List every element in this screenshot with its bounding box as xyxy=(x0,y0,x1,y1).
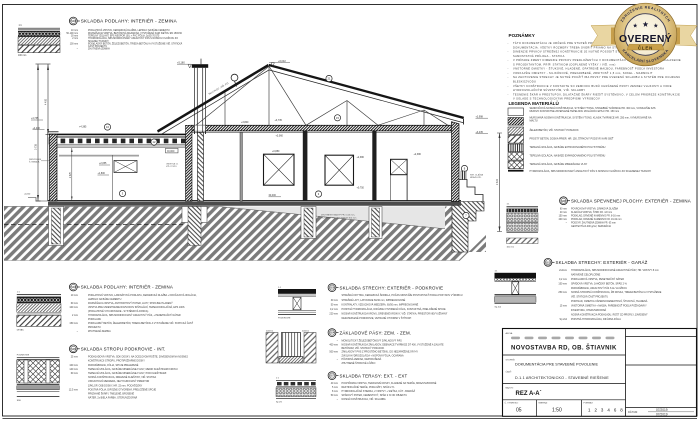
svg-text:NOSNÁ KONŠTRUKCIA ZÁKLADOV, DE: NOSNÁ KONŠTRUKCIA ZÁKLADOV, DEBNIACE TVÁ… xyxy=(342,343,444,346)
svg-text:(PODLAHOVÉ VYKUROVANIE - SYSTÉ: (PODLAHOVÉ VYKUROVANIE - SYSTÉMOVÁ DOSKA… xyxy=(88,310,148,313)
svg-text:PODKLAD, DRVENÉ KAMENIVO FR. 8: PODKLAD, DRVENÉ KAMENIVO FR. 8-16 mm xyxy=(571,215,620,218)
svg-text:POVRCHOVÁ VRSTVA, ZÁMKOVÁ DLAŽ: POVRCHOVÁ VRSTVA, ZÁMKOVÁ DLAŽBA xyxy=(571,208,618,211)
svg-text:KLADÚCA VRSTVA, ŠTRK FR. 4-8 m: KLADÚCA VRSTVA, ŠTRK FR. 4-8 mm xyxy=(571,211,612,214)
svg-text:50 mm: 50 mm xyxy=(331,394,338,397)
svg-text:NOSNÁ STROPNÁ KONŠTRUKCIA, ŽB: NOSNÁ STROPNÁ KONŠTRUKCIA, ŽB DOSKA, TRI… xyxy=(571,291,662,294)
svg-text:100 mm: 100 mm xyxy=(70,43,78,45)
svg-text:DÁTUM:: DÁTUM: xyxy=(628,410,638,414)
svg-text:PROJEKTU: PROJEKTU xyxy=(88,326,101,329)
svg-text:40 mm: 40 mm xyxy=(560,212,567,214)
svg-text:-: - xyxy=(508,85,509,88)
svg-text:+6,002: +6,002 xyxy=(278,60,286,63)
svg-text:150 mm: 150 mm xyxy=(558,282,567,285)
svg-text:STREŠNÁ KRYTINA, KERAMICKÁ ŠKR: STREŠNÁ KRYTINA, KERAMICKÁ ŠKRIDLA, POČA… xyxy=(342,294,463,297)
svg-text:SKLADBA STRECHY: EXTERIÉR - GA: SKLADBA STRECHY: EXTERIÉR - GARÁŽ xyxy=(556,260,648,265)
svg-text:TEPELNÁ IZOLÁCIA, NA BÁZE MINE: TEPELNÁ IZOLÁCIA, NA BÁZE MINERÁLNEJ VLN… xyxy=(88,368,178,371)
svg-text:-: - xyxy=(508,42,509,45)
svg-text:PODKLADU: PODKLADU xyxy=(88,318,101,321)
svg-text:+0,750: +0,750 xyxy=(357,187,365,190)
svg-text:S06: S06 xyxy=(71,347,76,351)
svg-text:PRIZNANÉ ŠKÁRY, TMELENÉ, BRÚSE: PRIZNANÉ ŠKÁRY, TMELENÉ, BRÚSENÉ xyxy=(88,393,134,396)
svg-text:HYDROIZOLAČNÁ STIERKA, 2 VRSTV: HYDROIZOLAČNÁ STIERKA, 2 VRSTVY + SIEŤKA… xyxy=(342,390,416,393)
svg-text:D.1.1 ARCHITEKTONICKO - STAVE: D.1.1 ARCHITEKTONICKO - STAVEBNÉ RIEŠENI… xyxy=(515,375,609,380)
svg-text:SDK: SDK xyxy=(17,400,22,402)
svg-text:-: - xyxy=(508,76,509,79)
svg-text:NÁTER, 2x BIELA FARBA, OTERUVZ: NÁTER, 2x BIELA FARBA, OTERUVZDORNÁ xyxy=(88,397,138,400)
svg-text:5 mm: 5 mm xyxy=(332,386,338,389)
svg-text:TEPELNÁ IZOLÁCIA, NA BÁZE MINE: TEPELNÁ IZOLÁCIA, NA BÁZE MINERÁLNEJ VLN… xyxy=(530,163,588,166)
svg-text:ZATEPLENIE: ZATEPLENIE xyxy=(29,158,42,161)
svg-text:POISTNÁ HYDROIZOLÁCIA, DIFÚZNE: POISTNÁ HYDROIZOLÁCIA, DIFÚZNE OTVORENÁ … xyxy=(342,308,447,311)
svg-text:PODKLADNÝ BETÓN, ŽELEZOBETÓN,: PODKLADNÝ BETÓN, ŽELEZOBETÓN, TRIEDA BET… xyxy=(88,42,183,45)
svg-text:MALTU: MALTU xyxy=(530,120,538,123)
svg-text:+0,880: +0,880 xyxy=(272,150,280,153)
svg-text:60 mm: 60 mm xyxy=(71,372,78,375)
svg-text:VZDUCHOVÁ MEDZERA, NEVYKUROVAN: VZDUCHOVÁ MEDZERA, NEVYKUROVANÝ PRIESTOR xyxy=(88,380,150,383)
svg-text:2 mm: 2 mm xyxy=(72,38,78,40)
svg-text:Sp 4x2: Sp 4x2 xyxy=(495,307,502,309)
svg-text:10 mm: 10 mm xyxy=(71,294,78,297)
svg-text:HYDROIZOLÁCIA, SBS MODIFIKOVAN: HYDROIZOLÁCIA, SBS MODIFIKOVANÝ ASFALTOV… xyxy=(530,170,652,173)
svg-text:100 mm: 100 mm xyxy=(18,55,26,57)
svg-text:S08: S08 xyxy=(561,199,566,203)
svg-text:PODKROVIE: PODKROVIE xyxy=(278,318,291,320)
svg-text:10 mm: 10 mm xyxy=(71,30,78,32)
svg-text:PODSYP, ZHUTNENÁ ZEMINA FR. 63: PODSYP, ZHUTNENÁ ZEMINA FR. 63 mm xyxy=(571,222,616,225)
svg-text:NATAVENÉ CELOPLOŠNE: NATAVENÉ CELOPLOŠNE xyxy=(571,273,601,276)
svg-text:Sp 2x2: Sp 2x2 xyxy=(560,318,568,321)
svg-text:TEPELNÁ IZOLÁCIA, NA BÁZE EXPA: TEPELNÁ IZOLÁCIA, NA BÁZE EXPANDOVANÉHO … xyxy=(530,155,606,158)
svg-text:PAROZÁBRANA, ASFALTOVÝ PÁS S A: PAROZÁBRANA, ASFALTOVÝ PÁS S AL VLOŽKOU xyxy=(571,287,627,290)
svg-text:MURIVO KONTAKTNE ZATEPLENÉ TEP: MURIVO KONTAKTNE ZATEPLENÉ TEPELNOU IZOL… xyxy=(530,110,620,113)
svg-text:ČASŤ PROJEKTU: ČASŤ PROJEKTU xyxy=(88,45,107,48)
svg-text:STUPEŇ:: STUPEŇ: xyxy=(506,358,516,361)
svg-text:2 625: 2 625 xyxy=(70,172,72,178)
svg-text:3 735: 3 735 xyxy=(35,143,38,150)
svg-text:PODLAHOVÁ VRSTVA, LAMINÁTOVÁ P: PODLAHOVÁ VRSTVA, LAMINÁTOVÁ PODLAHA, KE… xyxy=(88,294,197,297)
svg-text:500 mm: 500 mm xyxy=(329,351,338,354)
svg-text:ZÁKLADOVÝ PÁS Z PROSTÉHO BETÓN: ZÁKLADOVÝ PÁS Z PROSTÉHO BETÓNU, DO NEZA… xyxy=(342,351,419,354)
svg-text:DOKUMENTÁCIA PRE STAVEBNÉ POVO: DOKUMENTÁCIA PRE STAVEBNÉ POVOLENIE xyxy=(515,361,598,366)
svg-text:4 400: 4 400 xyxy=(45,98,48,105)
svg-text:ZHUTNENÝ NÁSYP FR. 0-63 mm,: ZHUTNENÝ NÁSYP FR. 0-63 mm, xyxy=(321,214,355,217)
svg-text:NOSNÁ KONŠTRUKCIA, DREVENÉ KLI: NOSNÁ KONŠTRUKCIA, DREVENÉ KLIEŠTINY, VI… xyxy=(88,376,157,379)
svg-text:07/2019: 07/2019 xyxy=(656,413,668,417)
svg-text:GEOTEXTÍLIA 300 g/m2, SEPARÁCI: GEOTEXTÍLIA 300 g/m2, SEPARÁCIA xyxy=(571,225,611,228)
svg-text:+4,735: +4,735 xyxy=(31,117,39,120)
svg-text:+2,380: +2,380 xyxy=(414,153,422,156)
svg-text:HYDROIZOLÁCIA, SBS MODIFIKOVAN: HYDROIZOLÁCIA, SBS MODIFIKOVANÝ ASFALTOV… xyxy=(88,314,181,317)
svg-text:±0,000: ±0,000 xyxy=(167,150,175,153)
svg-text:Sp 2%: Sp 2% xyxy=(276,401,282,403)
svg-text:MIERKA:: MIERKA: xyxy=(539,402,548,405)
svg-text:PODKROVIE: PODKROVIE xyxy=(17,354,30,356)
svg-text:REKTIFIKAČNÉ TERČE, PODLOŽKY,: REKTIFIKAČNÉ TERČE, PODLOŽKY, SPÁD 2 % xyxy=(342,386,396,389)
svg-text:HYDROIZOLÁCIA, SBS MODIFIKOVAN: HYDROIZOLÁCIA, SBS MODIFIKOVANÉ ASFALTOV… xyxy=(571,269,659,272)
svg-text:ČASŤ:: ČASŤ: xyxy=(506,370,513,373)
svg-text:150 mm: 150 mm xyxy=(559,216,567,218)
svg-text:BLESKOZVODU: BLESKOZVODU xyxy=(513,80,536,84)
svg-text:PROSTÝ BETÓN, DOSKA PRIER. HR.: PROSTÝ BETÓN, DOSKA PRIER. HR. 150, ŠTRK… xyxy=(530,138,614,141)
svg-text:DETAIL: DETAIL xyxy=(17,329,25,332)
svg-text:SKLADBA PODLAHY: INTERIÉR - ZE: SKLADBA PODLAHY: INTERIÉR - ZEMINA xyxy=(81,18,178,24)
svg-text:KONŠTRUKCII STROPU, PROTIPOŽIA: KONŠTRUKCII STROPU, PROTIPOŽIARNE DOSKY xyxy=(88,360,145,363)
svg-text:25 mm: 25 mm xyxy=(71,356,78,359)
svg-text:-: - xyxy=(508,93,509,96)
svg-text:NOVOSTAVBA RD, OB. ŠTIAVNIK: NOVOSTAVBA RD, OB. ŠTIAVNIK xyxy=(511,344,617,352)
svg-text:SPÁDOVÝ POTER, CEMENTOVÝ, SPÁD: SPÁDOVÝ POTER, CEMENTOVÝ, SPÁD 2 % OD OB… xyxy=(342,394,408,397)
svg-text:220 mm: 220 mm xyxy=(329,312,338,315)
svg-text:2 615: 2 615 xyxy=(496,178,499,185)
svg-text:100 mm: 100 mm xyxy=(69,364,78,367)
svg-text:S03: S03 xyxy=(71,19,76,23)
svg-text:-: - xyxy=(508,51,509,54)
svg-text:0,2 mm: 0,2 mm xyxy=(559,278,567,281)
svg-text:ZHUTNENÉ ŠTRKOVÉ LÔŽKO: ZHUTNENÉ ŠTRKOVÉ LÔŽKO xyxy=(342,362,376,365)
svg-text:AKCIA:: AKCIA: xyxy=(506,332,514,335)
svg-text:OVERENÝ: OVERENÝ xyxy=(619,32,672,45)
svg-text:ŽELEZOBETÓN, VIĎ. STATICKÝ POS: ŽELEZOBETÓN, VIĎ. STATICKÝ POSUDOK xyxy=(530,129,579,132)
svg-text:SKLADBA SPEVNENEJ PLOCHY: EXTE: SKLADBA SPEVNENEJ PLOCHY: EXTERIÉR - ZEM… xyxy=(571,198,691,203)
svg-text:S04: S04 xyxy=(330,331,335,335)
svg-text:POCHÔDZNA VRSTVA, TERASOVÉ DOS: POCHÔDZNA VRSTVA, TERASOVÉ DOSKY, KLADEN… xyxy=(342,382,437,385)
svg-text:ČLEN: ČLEN xyxy=(638,45,653,50)
svg-text:POZNÁMKY: POZNÁMKY xyxy=(509,32,535,38)
svg-text:SKLENEJ TKANINY: SKLENEJ TKANINY xyxy=(88,40,109,43)
svg-text:1:50: 1:50 xyxy=(552,408,562,414)
svg-text:+3,998: +3,998 xyxy=(476,115,484,118)
svg-text:PAROZÁBRANA, FÓLIA, SPOJE PREL: PAROZÁBRANA, FÓLIA, SPOJE PRELEPENÉ xyxy=(88,364,139,367)
svg-text:30 mm: 30 mm xyxy=(331,299,338,302)
svg-text:LEGENDA MATERIÁLŮ: LEGENDA MATERIÁLŮ xyxy=(509,99,560,106)
svg-text:07/2019: 07/2019 xyxy=(656,408,668,412)
svg-text:PODLAHOVÁ VRSTVA, KERAMICKÁ DL: PODLAHOVÁ VRSTVA, KERAMICKÁ DLAŽBA, LEPI… xyxy=(88,29,170,32)
svg-text:+3,735: +3,735 xyxy=(275,119,283,122)
svg-text:ROZNÁŠACIA VRSTVA, ANHYDRITOVÝ: ROZNÁŠACIA VRSTVA, ANHYDRITOVÝ POTER, LI… xyxy=(88,302,173,305)
svg-text:MONOLITICKÝ ŽELEZOBETÓNOVÝ ZÁK: MONOLITICKÝ ŽELEZOBETÓNOVÝ ZÁKLADOVÝ PÁS xyxy=(342,340,403,343)
svg-text:+4,400: +4,400 xyxy=(33,127,41,130)
svg-text:INVESTORA, OTERUVZDORNÁ: INVESTORA, OTERUVZDORNÁ xyxy=(571,309,607,312)
svg-text:SKLADBA STRECHY: EXTERIÉR - PO: SKLADBA STRECHY: EXTERIÉR - PODKROVIE xyxy=(340,285,444,290)
svg-text:POISTNÁ FÓLIA, DIFÚZNE OTVOREN: POISTNÁ FÓLIA, DIFÚZNE OTVORENÁ, PRELOŽE… xyxy=(88,388,157,391)
svg-text:PODKLADNÝ BETÓN, ŽELEZOBETÓN,: PODKLADNÝ BETÓN, ŽELEZOBETÓN, TRIEDA BET… xyxy=(88,322,194,325)
svg-text:VNÚTORNÁ OMIETKA + MAĽBA, FARE: VNÚTORNÁ OMIETKA + MAĽBA, FAREBNOSŤ PODĽ… xyxy=(571,305,647,308)
svg-text:2x4mm: 2x4mm xyxy=(559,269,567,272)
svg-text:VIĎ. POPIS: VIĎ. POPIS xyxy=(166,165,177,168)
svg-text:+4,385: +4,385 xyxy=(79,125,87,128)
svg-text:NEZATEPLENÉ PODKROVIE, VETRANÉ: NEZATEPLENÉ PODKROVIE, VETRANÉ OTVORMI V… xyxy=(342,317,412,320)
svg-text:+5,180: +5,180 xyxy=(177,61,185,64)
svg-text:ROZNÁŠACIA VRSTVA, BETÓNOVÁ MA: ROZNÁŠACIA VRSTVA, BETÓNOVÁ MAZANINA, VY… xyxy=(88,32,183,35)
svg-text:TEPELNÝ IZOLANT, EPS NEOPOR 10: TEPELNÝ IZOLANT, EPS NEOPOR 100, + PVC F… xyxy=(88,35,160,38)
svg-text:S05: S05 xyxy=(546,260,551,264)
svg-text:POISTNÁ HYDROIZOLÁCIA, DIFÚZNA: POISTNÁ HYDROIZOLÁCIA, DIFÚZNA FÓLIA xyxy=(571,318,621,321)
svg-text:PODHĽADOVÁ VRSTVA, SDK DOSKY,: PODHĽADOVÁ VRSTVA, SDK DOSKY, NA OCEĽOVO… xyxy=(88,356,189,359)
svg-text:ZHUTNENÁ ZEMINA: ZHUTNENÁ ZEMINA xyxy=(88,330,111,333)
svg-text:40 mm: 40 mm xyxy=(331,382,338,385)
svg-text:+3,800: +3,800 xyxy=(241,121,249,124)
svg-text:TEPELNÁ IZOLÁCIA, NA BÁZE MINE: TEPELNÁ IZOLÁCIA, NA BÁZE MINERÁLNEJ VLN… xyxy=(88,372,167,375)
svg-text:PODHĽAD, OMIETKA VÁPENNOCEMENT: PODHĽAD, OMIETKA VÁPENNOCEMENTOVÁ, ŠTUKO… xyxy=(571,300,648,303)
svg-text:ZÁKLOP, OSB DOSKY, HR. 22 mm,: ZÁKLOP, OSB DOSKY, HR. 22 mm, POCHÔDZNY xyxy=(88,384,143,387)
svg-text:200mm: 200mm xyxy=(266,330,273,332)
svg-text:VIĎ. STATICKÁ ČASŤ PROJEKTU: VIĎ. STATICKÁ ČASŤ PROJEKTU xyxy=(571,296,608,299)
svg-text:+2,055: +2,055 xyxy=(99,162,107,165)
svg-text:BETÓNOM, VIĎ. STATICKÝ POSUDOK: BETÓNOM, VIĎ. STATICKÝ POSUDOK xyxy=(342,347,385,350)
svg-text:NOSNÁ KONŠTRUKCIA KROVU, DREVE: NOSNÁ KONŠTRUKCIA KROVU, DREVENÉ KROKVY,… xyxy=(342,312,448,315)
svg-text:200 mm: 200 mm xyxy=(559,219,567,221)
svg-text:ZHUTNENÁ ZEMINA: ZHUTNENÁ ZEMINA xyxy=(88,48,110,51)
svg-text:S03: S03 xyxy=(71,285,76,289)
svg-text:S06: S06 xyxy=(330,286,335,290)
svg-text:15 mm: 15 mm xyxy=(560,305,567,308)
svg-text:+3,060: +3,060 xyxy=(276,135,284,138)
svg-text:SAMOSTATNÁ PRÍLOHA - STATIKA: SAMOSTATNÁ PRÍLOHA - STATIKA xyxy=(513,54,565,58)
svg-text:100 mm: 100 mm xyxy=(69,306,78,309)
svg-text:+1,800: +1,800 xyxy=(98,172,106,175)
svg-text:60 mm: 60 mm xyxy=(71,302,78,305)
svg-text:NOSNÁ KONŠTRUKCIA PODHĽADU, RO: NOSNÁ KONŠTRUKCIA PODHĽADU, ROŠT CD PROF… xyxy=(571,314,648,317)
svg-text:PODKLAD, DRVENÉ KAMENIVO FR. 1: PODKLAD, DRVENÉ KAMENIVO FR. 16-32 mm xyxy=(571,218,622,221)
svg-text:LEPIDLO NA BÁZE CEMENTU: LEPIDLO NA BÁZE CEMENTU xyxy=(88,298,122,301)
svg-text:Š. FASÁDA: Š. FASÁDA xyxy=(29,160,40,163)
svg-text:MRAZUVZD.: MRAZUVZD. xyxy=(470,176,482,179)
svg-text:+2,380: +2,380 xyxy=(357,156,365,159)
svg-text:50 mm: 50 mm xyxy=(331,303,338,306)
svg-text:MUROVANÁ NOSNÁ KONŠTRUKCIA, SY: MUROVANÁ NOSNÁ KONŠTRUKCIA, SYSTÉM YTONG… xyxy=(530,117,652,120)
svg-text:HYDROIZOLÁCIA, SBS MODIFIKOVAN: HYDROIZOLÁCIA, SBS MODIFIKOVANÝ ASFALTOV… xyxy=(88,37,178,40)
svg-text:12,5 mm: 12,5 mm xyxy=(69,388,78,391)
svg-text:0,2 mm: 0,2 mm xyxy=(330,308,338,311)
svg-text:-: - xyxy=(508,68,509,71)
svg-text:VRSTVA PRE UMIESTNENIE ROZVODO: VRSTVA PRE UMIESTNENIE ROZVODOV INŠTALÁC… xyxy=(88,306,185,309)
svg-text:100 mm: 100 mm xyxy=(507,247,515,249)
svg-text:FORMÁT:: FORMÁT: xyxy=(584,402,594,405)
svg-text:OMIETKA 1:1: OMIETKA 1:1 xyxy=(166,162,179,165)
svg-text:-: - xyxy=(508,59,509,62)
svg-text:STREŠNÉ LATY, LATOVANIE 60/40: STREŠNÉ LATY, LATOVANIE 60/40 mm, IMPREG… xyxy=(342,299,406,302)
svg-text:400 mm: 400 mm xyxy=(329,343,338,346)
svg-text:1 2 3 4 6 8: 1 2 3 4 6 8 xyxy=(588,408,624,413)
svg-text:140 mm: 140 mm xyxy=(69,368,78,371)
svg-text:ZVISLÁ HYDROIZOLÁCIA + NOPOVÁ: ZVISLÁ HYDROIZOLÁCIA + NOPOVÁ FÓLIA, OCH… xyxy=(342,354,405,357)
svg-text:05: 05 xyxy=(516,408,522,414)
svg-text:150 mm: 150 mm xyxy=(69,322,78,325)
svg-text:-: - xyxy=(508,72,509,75)
svg-text:Č. VÝKRESU:: Č. VÝKRESU: xyxy=(505,402,519,405)
svg-text:2 mm: 2 mm xyxy=(72,314,78,317)
svg-text:8 mm: 8 mm xyxy=(332,390,338,393)
svg-text:S07: S07 xyxy=(330,374,335,378)
svg-text:ZÁKLADOVÉ PÁSY: ZEM. - ZEM.: ZÁKLADOVÉ PÁSY: ZEM. - ZEM. xyxy=(340,330,412,335)
svg-text:REZ A-A´: REZ A-A´ xyxy=(516,391,542,397)
svg-text:PÔVODNÁ ZEMINA, NEPORUŠENÁ: PÔVODNÁ ZEMINA, NEPORUŠENÁ xyxy=(342,358,382,361)
svg-text:250 mm: 250 mm xyxy=(558,291,567,294)
svg-text:KER. DLAŽBA: KER. DLAŽBA xyxy=(470,174,484,177)
svg-text:NÁZOV:: NÁZOV: xyxy=(506,386,514,389)
svg-text:SKLADBA STROPU PODKROVIE - IN: SKLADBA STROPU PODKROVIE - INT. xyxy=(81,347,166,352)
svg-text:±0,000: ±0,000 xyxy=(269,194,277,197)
svg-text:-0,050: -0,050 xyxy=(24,193,31,195)
svg-text:200mm: 200mm xyxy=(302,330,309,332)
svg-text:NOSNÁ KONŠTRUKCIA, VIĎ. SKLADB: NOSNÁ KONŠTRUKCIA, VIĎ. SKLADBA xyxy=(342,398,387,401)
svg-text:SPÁDOVÁ VRSTVA, ĽAHČENÝ BETÓN,: SPÁDOVÁ VRSTVA, ĽAHČENÝ BETÓN, SPÁD 2 % xyxy=(571,282,628,285)
svg-text:KONTRALATY, VZDUCHOVÁ MEDZERA,: KONTRALATY, VZDUCHOVÁ MEDZERA, 60/50 mm,… xyxy=(342,303,419,306)
svg-text:60 mm: 60 mm xyxy=(560,209,567,211)
svg-text:SKLADBA PODLAHY: INTERIÉR - ZE: SKLADBA PODLAHY: INTERIÉR - ZEMINA xyxy=(81,285,173,290)
svg-text:PODKLADOVÁ VRSTVA, PENETRAČNÝ: PODKLADOVÁ VRSTVA, PENETRAČNÝ NÁTER xyxy=(571,278,624,281)
svg-text:HUTNENÉ PO VRSTVÁCH 300 mm: HUTNENÉ PO VRSTVÁCH 300 mm xyxy=(321,217,357,220)
svg-text:+3,435: +3,435 xyxy=(476,131,484,134)
svg-text:TEPELNÁ IZOLÁCIA, NA BÁZE EXTR: TEPELNÁ IZOLÁCIA, NA BÁZE EXTRUDOVANÉHO … xyxy=(530,146,606,149)
svg-text:SKLADBA TERASY: EXT. - EXT: SKLADBA TERASY: EXT. - EXT xyxy=(340,373,408,378)
